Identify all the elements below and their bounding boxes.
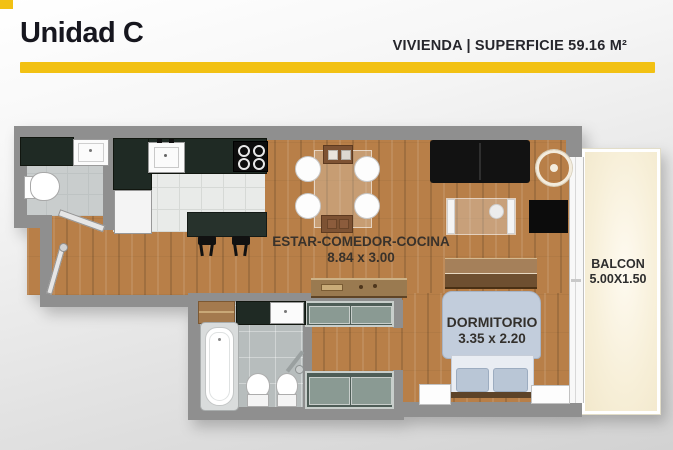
dining-chair	[295, 193, 321, 219]
wardrobe-sliding-door	[309, 306, 350, 324]
shelf-line	[199, 311, 234, 313]
living-room-label: ESTAR-COMEDOR-COCINA 8.84 x 3.00	[265, 234, 457, 267]
bathroom-shelf	[198, 301, 235, 324]
bidet-base	[277, 394, 297, 407]
hanging-chair-center	[550, 164, 558, 172]
shower-head	[295, 365, 304, 374]
living-room-name: ESTAR-COMEDOR-COCINA	[265, 234, 457, 250]
sofa	[430, 140, 530, 183]
wall	[393, 300, 403, 328]
living-room-size: 8.84 x 3.00	[265, 250, 457, 266]
dish	[339, 219, 349, 229]
wardrobe-sliding-door	[351, 377, 392, 405]
wall	[566, 126, 582, 160]
pillow	[456, 368, 489, 392]
toilet-tank	[247, 394, 269, 407]
wardrobe	[305, 371, 394, 409]
dining-chair	[354, 156, 380, 182]
washbasin-faucet	[89, 149, 92, 152]
balcony-label: BALCON 5.00X1.50	[580, 257, 656, 288]
dish	[328, 150, 338, 160]
dish	[327, 219, 337, 229]
bar-stool	[232, 236, 250, 245]
kitchen-sink	[148, 142, 185, 173]
fridge	[114, 190, 152, 234]
nightstand	[419, 384, 451, 405]
stove-burner	[253, 158, 265, 170]
stove-cooktop	[233, 141, 268, 172]
kitchen-island	[187, 212, 267, 237]
floor-plan: ESTAR-COMEDOR-COCINA 8.84 x 3.00 DORMITO…	[0, 0, 673, 450]
table-plate	[489, 204, 504, 219]
dining-chair	[354, 193, 380, 219]
dish	[341, 150, 351, 160]
bathtub	[200, 322, 239, 411]
coffee-table-leg	[447, 199, 455, 234]
entry-door-knob	[59, 243, 68, 252]
tv-table	[529, 200, 568, 233]
bathroom-washbasin	[270, 302, 304, 324]
wall	[40, 295, 198, 307]
stove-burner	[253, 145, 265, 157]
washbasin-faucet	[284, 310, 287, 313]
sideboard	[311, 278, 407, 298]
dining-chair	[295, 156, 321, 182]
sideboard-item	[321, 284, 343, 291]
bathtub-basin	[205, 327, 234, 406]
place-setting	[321, 215, 353, 233]
bedroom-dresser-front	[445, 273, 537, 289]
kitchen-counter-left	[113, 138, 152, 190]
coffee-table	[446, 198, 516, 235]
nightstand	[531, 385, 570, 404]
place-setting	[323, 145, 353, 164]
bathtub-drain	[218, 338, 221, 341]
wardrobe-sliding-door	[309, 377, 350, 405]
sideboard-item	[359, 285, 363, 289]
sofa-seam	[479, 143, 481, 180]
balcony-size: 5.00X1.50	[580, 272, 656, 287]
bedroom-dresser-top	[445, 258, 537, 274]
hanging-chair	[536, 150, 572, 186]
stove-burner	[238, 158, 250, 170]
bathtub-inner-line	[209, 332, 230, 401]
wall	[14, 126, 582, 140]
bar-stool	[198, 236, 216, 245]
bedroom-size: 3.35 x 2.20	[428, 331, 556, 347]
bed-headboard	[450, 392, 533, 398]
kitchen-sink-drain	[164, 154, 167, 157]
bedroom-name: DORMITORIO	[428, 314, 556, 331]
bedroom-label: DORMITORIO 3.35 x 2.20	[428, 314, 556, 348]
balcony-name: BALCON	[580, 257, 656, 272]
stove-burner	[238, 145, 250, 157]
toilet-room-vanity-counter	[20, 137, 74, 166]
washbasin-bowl	[78, 143, 104, 162]
sideboard-item	[373, 284, 377, 288]
toilet-room-washbasin	[73, 139, 109, 166]
wardrobe-sliding-door	[351, 306, 392, 324]
coffee-table-leg	[507, 199, 515, 234]
kitchen-sink-basin	[154, 147, 179, 168]
wardrobe	[305, 301, 394, 327]
toilet	[30, 172, 60, 201]
kitchen-faucet	[169, 139, 174, 143]
kitchen-faucet	[157, 139, 162, 143]
pillow	[493, 368, 528, 392]
